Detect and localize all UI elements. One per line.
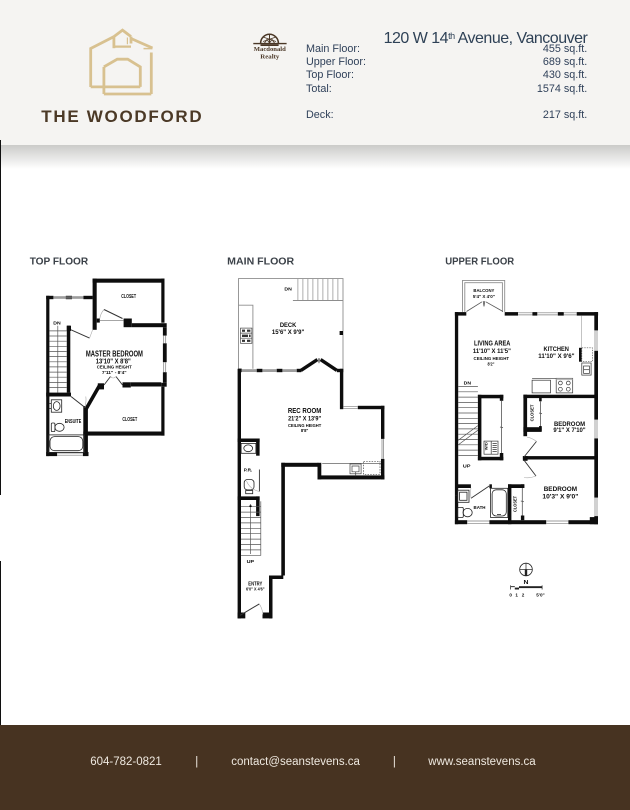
svg-text:DN: DN [284,286,292,291]
svg-text:CLOSET: CLOSET [122,417,137,423]
svg-text:2: 2 [522,593,525,598]
svg-text:UP: UP [463,463,471,468]
svg-text:CLOSET: CLOSET [530,404,535,421]
svg-text:CLOSET: CLOSET [121,294,136,300]
svg-text:8'2": 8'2" [488,361,495,366]
svg-text:BEDROOM: BEDROOM [544,486,578,493]
svg-text:21'2" X 13'9": 21'2" X 13'9" [288,416,321,423]
svg-text:W/D: W/D [485,442,489,450]
svg-text:BATH: BATH [474,505,487,510]
svg-text:11'10" X 9'6": 11'10" X 9'6" [538,353,574,360]
svg-text:BALCONY: BALCONY [473,288,494,293]
svg-text:ENSUITE: ENSUITE [65,419,82,425]
svg-text:UP: UP [247,559,255,564]
svg-text:LIVING AREA: LIVING AREA [474,339,510,348]
svg-text:10'3" X 9'0": 10'3" X 9'0" [542,494,578,500]
svg-text:7'11" - 8'4": 7'11" - 8'4" [102,370,127,375]
svg-text:BEDROOM: BEDROOM [554,421,586,428]
svg-text:1: 1 [515,593,518,598]
svg-text:DN: DN [464,381,472,386]
svg-text:Realty: Realty [260,54,279,60]
svg-text:8'8": 8'8" [301,428,309,433]
svg-text:TOP FLOOR: TOP FLOOR [30,255,89,267]
svg-text:CEILING HEIGHT: CEILING HEIGHT [474,356,510,361]
svg-text:Macdonald: Macdonald [254,47,287,53]
svg-text:UPPER FLOOR: UPPER FLOOR [445,255,514,267]
svg-text:REC ROOM: REC ROOM [288,406,322,415]
svg-text:9'1" X 7'10": 9'1" X 7'10" [553,428,585,434]
svg-text:6'0" X 4'6": 6'0" X 4'6" [246,586,265,591]
svg-text:MAIN FLOOR: MAIN FLOOR [227,255,294,267]
svg-text:CLOSET: CLOSET [513,496,518,512]
svg-text:P.R.: P.R. [244,468,253,473]
svg-text:5'4" X 4'0": 5'4" X 4'0" [473,294,495,299]
svg-text:DN: DN [53,320,61,325]
svg-text:11'10" X 11'5": 11'10" X 11'5" [473,348,511,355]
svg-text:0: 0 [509,593,512,598]
svg-text:5'0": 5'0" [536,593,544,598]
svg-text:CEILING HEIGHT: CEILING HEIGHT [97,365,132,370]
svg-text:DECK: DECK [280,322,297,329]
svg-text:15'6" X 9'9": 15'6" X 9'9" [272,329,304,336]
svg-text:N: N [524,580,530,586]
